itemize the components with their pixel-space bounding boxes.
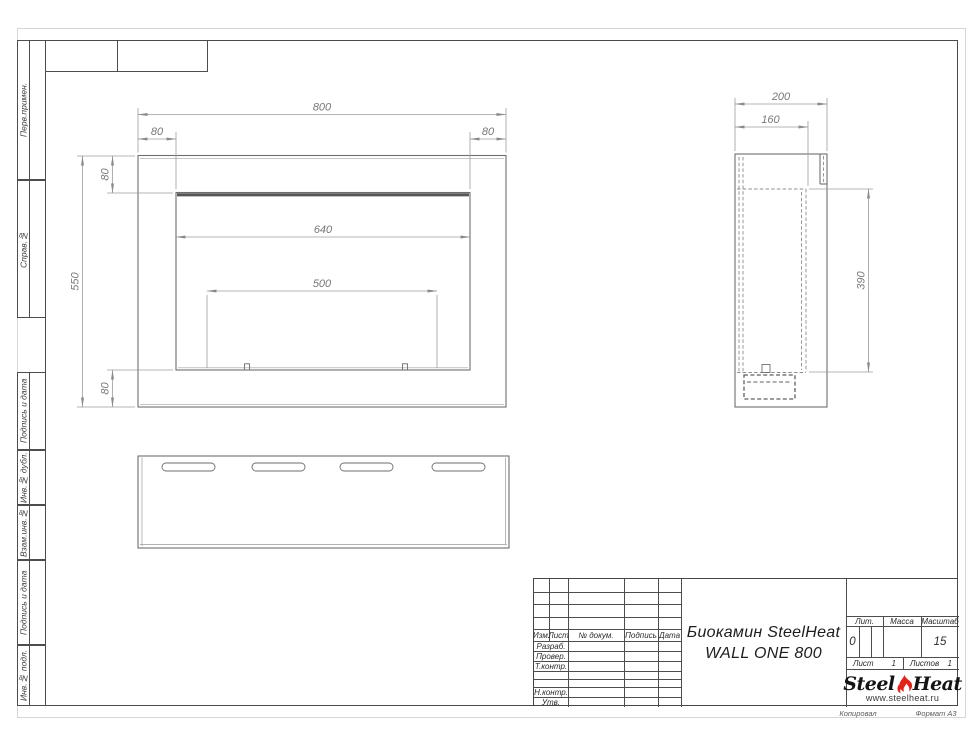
- row-nkontr: Н.контр.: [534, 687, 568, 697]
- sheets-value: 1: [948, 659, 952, 668]
- row-prover: Провер.: [534, 651, 568, 661]
- col-izm: Изм.: [534, 629, 549, 641]
- top-left-stamp-box: [45, 40, 208, 72]
- col-list: Лист: [549, 629, 568, 641]
- margin-box-sprav: Справ.№: [17, 180, 45, 318]
- row-utv: Утв.: [534, 697, 568, 707]
- margin-label: Перв.примен.: [18, 41, 29, 179]
- margin-box-podpis-data-1: Подпись и дата: [17, 372, 45, 450]
- flame-icon: [896, 674, 912, 695]
- lit-label: Лит.: [846, 616, 883, 626]
- sheets-total-cell: Листов 1: [903, 657, 959, 669]
- sheet-label: Лист: [853, 659, 874, 668]
- margin-box-podpis-data-2: Подпись и дата: [17, 560, 45, 645]
- row-tkontr: Т.контр.: [534, 661, 568, 671]
- row-razrab: Разраб.: [534, 641, 568, 651]
- margin-label: Взам.инв.№: [18, 506, 29, 559]
- title-block: Изм. Лист № докум. Подпись Дата Разраб. …: [533, 578, 958, 706]
- lit-value: 0: [846, 626, 859, 657]
- sheet-value: 1: [892, 659, 896, 668]
- margin-label: Инв.№ подл.: [18, 646, 29, 705]
- sheet-number-cell: Лист 1: [846, 657, 903, 669]
- footer-kopiroval: Копировал: [818, 709, 898, 718]
- scale-value: 15: [921, 626, 959, 657]
- drawing-sheet: { "sheet": { "margin_labels": ["Перв.при…: [0, 0, 970, 749]
- top-left-stamp-divider: [117, 40, 118, 71]
- sheets-label: Листов: [910, 659, 939, 668]
- logo-heat-text: Heat: [913, 673, 962, 695]
- margin-label: Справ.№: [18, 181, 29, 317]
- margin-box-inv-dubl: Инв.№ дубл.: [17, 450, 45, 505]
- margin-label: Подпись и дата: [18, 561, 29, 644]
- margin-box-vzam-inv: Взам.инв.№: [17, 505, 45, 560]
- footer-format: Формат А3: [898, 709, 970, 718]
- mass-label: Масса: [883, 616, 921, 626]
- col-dokum: № докум.: [568, 629, 624, 641]
- logo-url: www.steelheat.ru: [866, 693, 939, 703]
- document-title: Биокамин SteelHeat WALL ONE 800: [681, 579, 846, 707]
- margin-box-inv-podl: Инв.№ подл.: [17, 645, 45, 706]
- margin-label: Подпись и дата: [18, 373, 29, 449]
- logo-steel-text: Steel: [843, 673, 894, 695]
- scale-label: Масштаб: [921, 616, 959, 626]
- col-data: Дата: [658, 629, 681, 641]
- col-podpis: Подпись: [624, 629, 658, 641]
- document-title-line1: Биокамин SteelHeat: [687, 624, 840, 642]
- margin-label: Инв.№ дубл.: [18, 451, 29, 504]
- steelheat-logo: Steel Heat www.steelheat.ru: [846, 669, 959, 707]
- margin-box-perv-primen: Перв.примен.: [17, 40, 45, 180]
- document-title-line2: WALL ONE 800: [705, 645, 822, 663]
